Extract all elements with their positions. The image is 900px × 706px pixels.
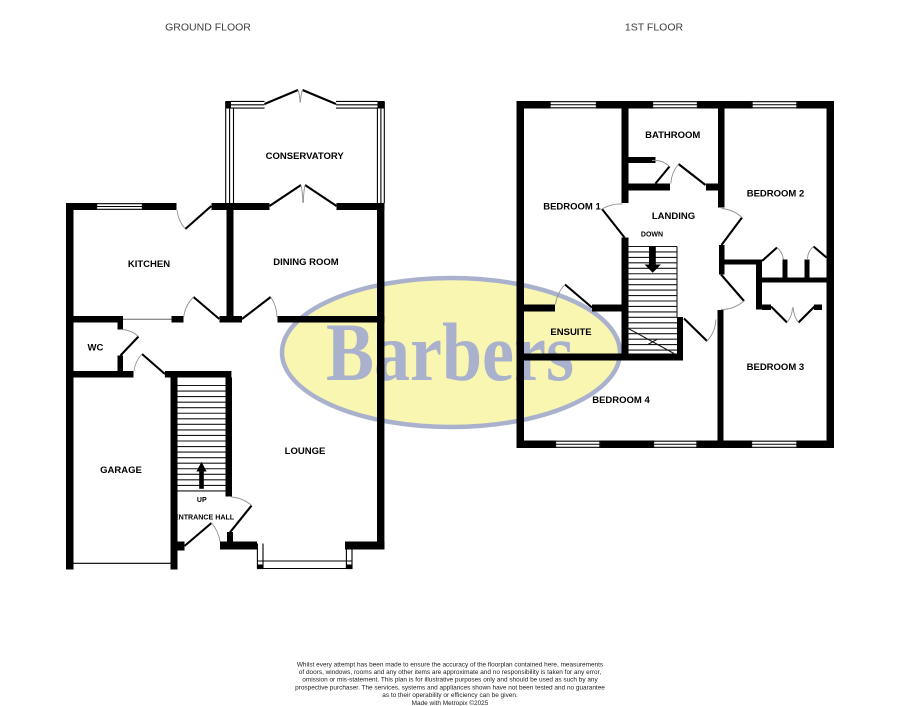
svg-text:KITCHEN: KITCHEN [128,259,170,270]
svg-text:BATHROOM: BATHROOM [645,130,700,141]
svg-text:WC: WC [87,343,103,354]
svg-text:LOUNGE: LOUNGE [285,446,326,457]
svg-text:GROUND FLOOR: GROUND FLOOR [165,22,251,34]
svg-text:Made with Metropix ©2025: Made with Metropix ©2025 [412,699,489,706]
svg-text:1ST FLOOR: 1ST FLOOR [625,22,684,34]
svg-text:Whilst every attempt has been: Whilst every attempt has been made to en… [297,661,603,668]
svg-text:CONSERVATORY: CONSERVATORY [266,151,345,162]
svg-text:omission or mis-statement. Thi: omission or mis-statement. This plan is … [302,677,598,684]
svg-text:BEDROOM 4: BEDROOM 4 [592,395,650,406]
svg-text:ENTRANCE HALL: ENTRANCE HALL [174,514,235,522]
svg-text:UP: UP [197,497,207,504]
svg-text:GARAGE: GARAGE [100,465,142,476]
svg-text:BEDROOM 1: BEDROOM 1 [543,202,601,213]
svg-text:BEDROOM 2: BEDROOM 2 [747,189,805,200]
svg-text:as to their operability or eff: as to their operability or efficiency ca… [382,692,518,699]
svg-text:DOWN: DOWN [641,232,663,239]
svg-text:DINING ROOM: DINING ROOM [273,257,339,268]
svg-text:ENSUITE: ENSUITE [550,327,591,338]
svg-text:of doors, windows, rooms and a: of doors, windows, rooms and any other i… [299,669,602,676]
svg-text:prospective purchaser. The ser: prospective purchaser. The services, sys… [295,684,605,691]
svg-text:LANDING: LANDING [652,211,695,222]
svg-text:BEDROOM 3: BEDROOM 3 [747,362,805,373]
